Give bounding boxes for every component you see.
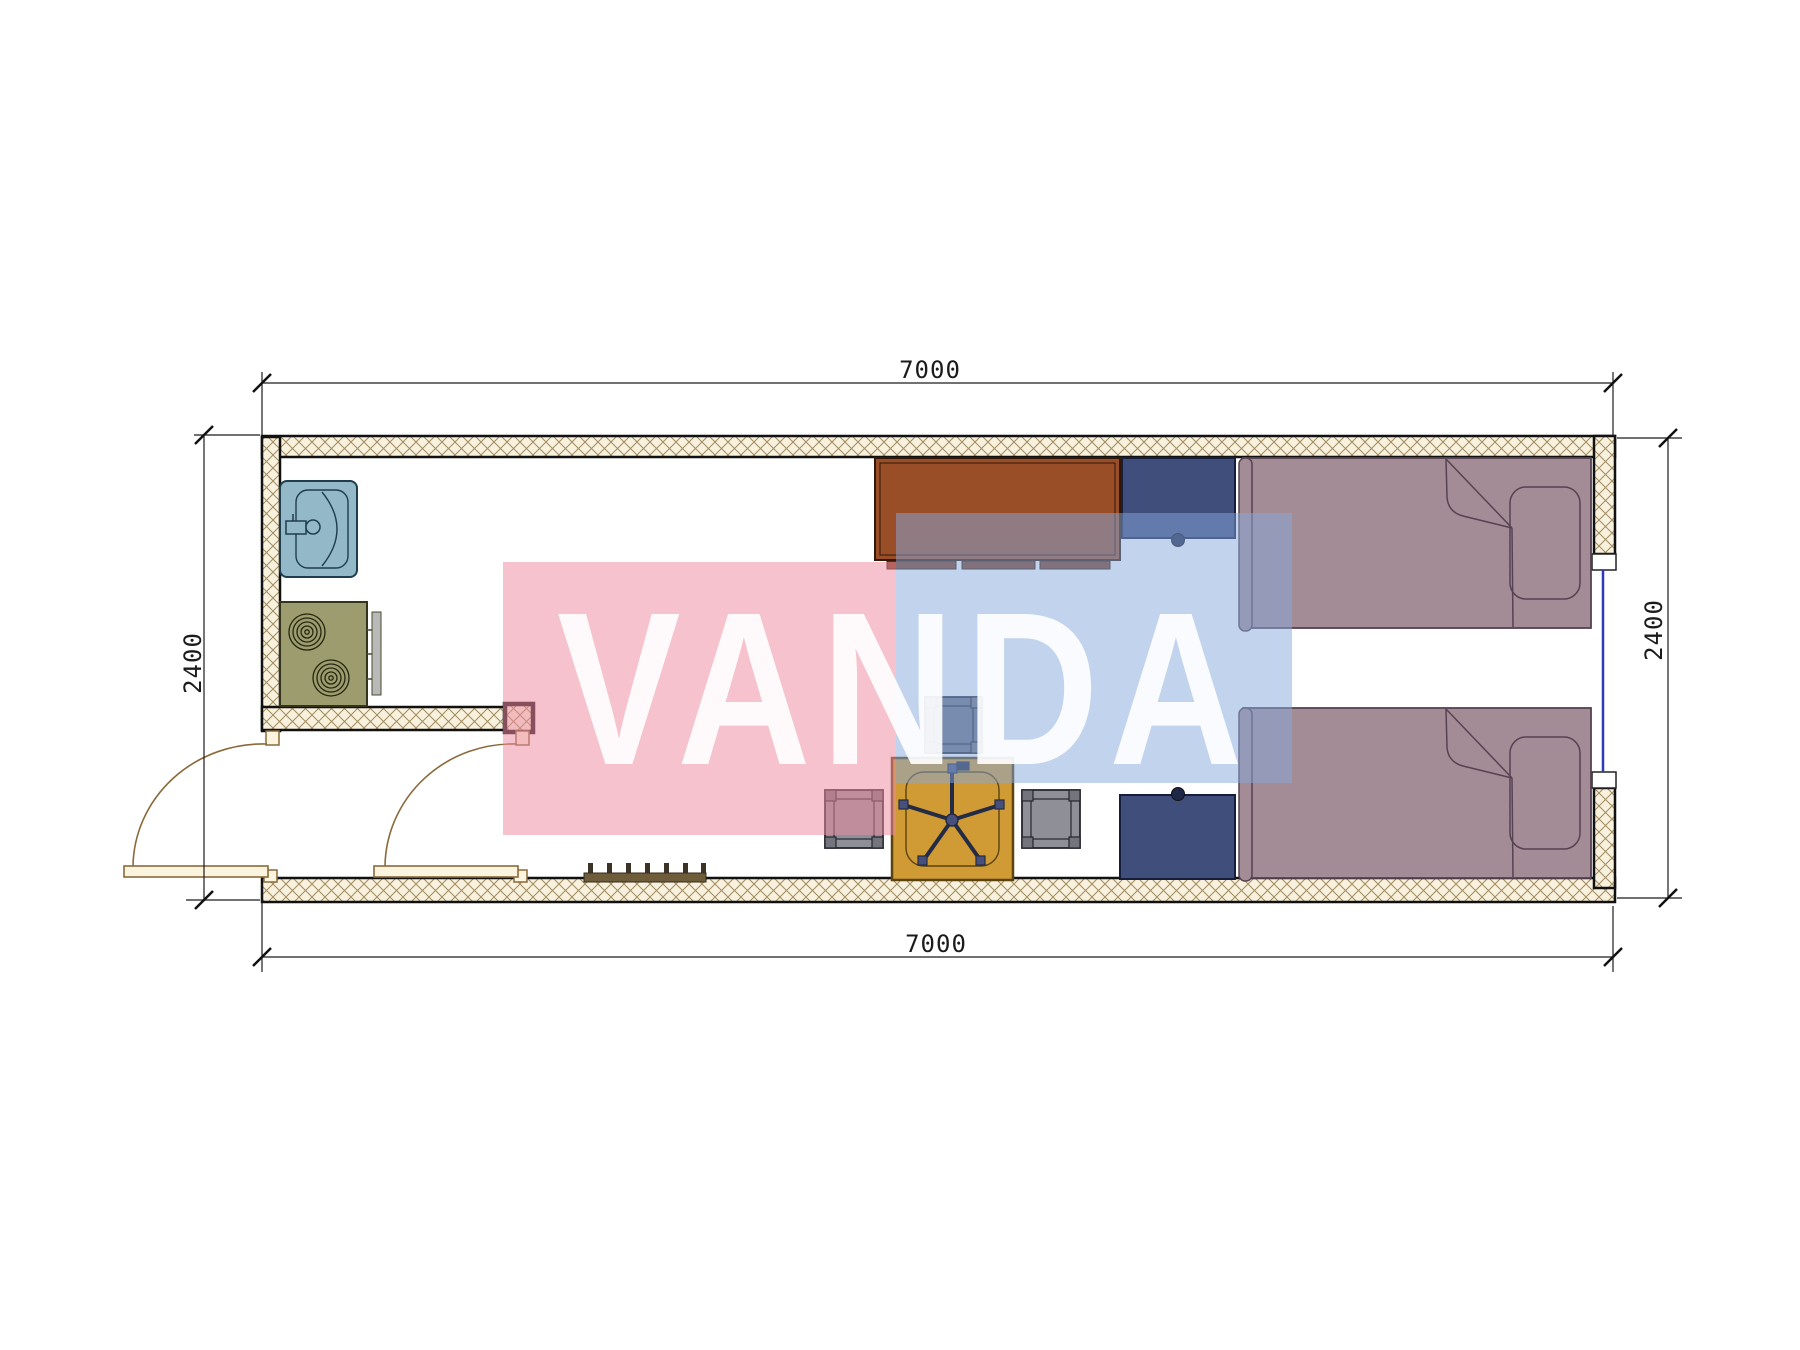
stove-control-panel (372, 612, 381, 695)
jamb-left-top (266, 731, 279, 745)
doormat (584, 863, 706, 882)
desk-drawers (887, 561, 1110, 569)
floor-plan-drawing (0, 0, 1800, 1350)
doors (124, 744, 518, 877)
caster (976, 856, 985, 865)
door-leaf-entry (374, 866, 518, 877)
door-swing-arc-entry (385, 744, 517, 866)
faucet-knob (306, 520, 320, 534)
stool-left (825, 790, 883, 848)
partition (262, 707, 507, 730)
bed-bottom (1239, 708, 1591, 881)
caster (948, 764, 957, 773)
floor-plan-canvas: VANDA 7000 7000 2400 2400 (0, 0, 1800, 1350)
doormat-bar (584, 873, 706, 882)
nightstand-knob (1172, 534, 1185, 547)
caster (995, 800, 1004, 809)
partition-end-cap (505, 704, 533, 732)
caster (918, 856, 927, 865)
sink (280, 481, 357, 577)
dimension-label-bottom: 7000 (876, 932, 996, 956)
nightstand-knob (1172, 788, 1185, 801)
dimension-label-top: 7000 (870, 358, 990, 382)
stool-right (1022, 790, 1080, 848)
wall-top (262, 436, 1615, 457)
bed-footboard (1239, 458, 1252, 631)
bed-mattress (1243, 708, 1591, 878)
wall-right-lower (1594, 788, 1615, 888)
window-frame-bottom (1592, 772, 1616, 788)
bed-top (1239, 458, 1591, 631)
table (892, 758, 1013, 880)
door-swing-arc-left (133, 744, 267, 866)
window (1592, 554, 1616, 788)
bed-footboard (1239, 708, 1252, 881)
chair-hub (946, 814, 958, 826)
dimension-label-left: 2400 (181, 603, 205, 723)
dimension-label-right: 2400 (1642, 570, 1666, 690)
desk (875, 458, 1120, 569)
caster (899, 800, 908, 809)
window-frame-top (1592, 554, 1616, 570)
caster-flag (957, 762, 969, 770)
stool-upper (925, 697, 982, 753)
wall-right-upper (1594, 436, 1615, 554)
wall-bottom (262, 878, 1615, 902)
nightstand-bottom (1120, 788, 1235, 880)
nightstand-top (1122, 458, 1235, 547)
faucet-base (286, 521, 306, 534)
jamb-entry-top (516, 731, 529, 745)
stove (280, 602, 381, 706)
partition-wall (262, 704, 533, 732)
door-jambs (264, 731, 529, 882)
bed-mattress (1243, 458, 1591, 628)
doormat-teeth (588, 863, 706, 873)
door-leaf-left (124, 866, 268, 877)
wall-left (262, 437, 280, 731)
desk-top (875, 458, 1120, 560)
